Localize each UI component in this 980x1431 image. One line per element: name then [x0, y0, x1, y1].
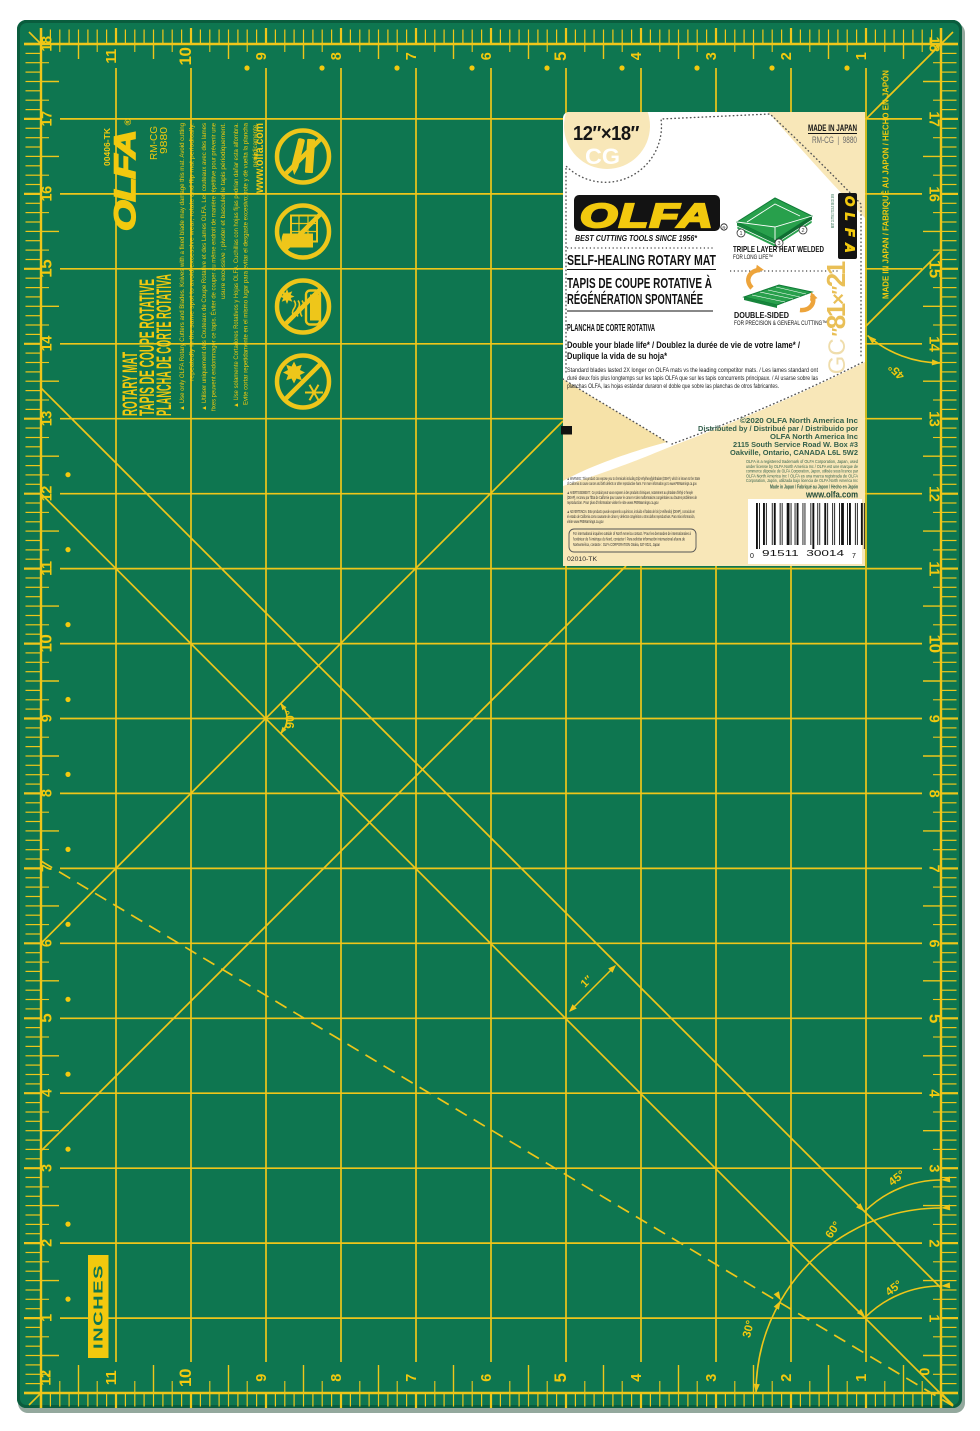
- svg-text:91511 30014: 91511 30014: [762, 549, 845, 558]
- svg-text:©2020 OLFA North America Inc: ©2020 OLFA North America Inc: [740, 417, 858, 425]
- svg-text:7: 7: [926, 865, 942, 873]
- svg-text:Duplique la vida de su hoja*: Duplique la vida de su hoja*: [567, 351, 667, 361]
- svg-text:F: F: [843, 228, 858, 237]
- svg-text:12: 12: [39, 1370, 55, 1386]
- svg-text:2: 2: [926, 1239, 942, 1247]
- svg-text:02010-TK: 02010-TK: [567, 556, 598, 563]
- svg-text:11: 11: [40, 561, 56, 576]
- svg-text:visite www.P65Warnings.ca.gov.: visite www.P65Warnings.ca.gov.: [567, 519, 604, 524]
- svg-text:4: 4: [629, 1374, 645, 1382]
- svg-text:duré deux fois plus longtemps: duré deux fois plus longtemps sur les ta…: [567, 375, 818, 382]
- svg-text:18: 18: [40, 36, 56, 52]
- svg-text:of California to cause cancer: of California to cause cancer and birth …: [567, 481, 697, 486]
- svg-text:10: 10: [176, 48, 195, 66]
- svg-text:9: 9: [254, 1374, 270, 1382]
- svg-text:6: 6: [479, 1374, 495, 1382]
- svg-text:8: 8: [329, 52, 345, 60]
- svg-text:MADE IN JAPAN: MADE IN JAPAN: [808, 123, 857, 134]
- svg-text:18: 18: [926, 36, 942, 52]
- svg-text:16: 16: [926, 186, 942, 202]
- svg-text:11: 11: [104, 49, 120, 64]
- svg-text:SELF-HEALING ROTARY MAT: SELF-HEALING ROTARY MAT: [567, 252, 716, 269]
- svg-text:3: 3: [704, 52, 720, 60]
- svg-text:10: 10: [926, 635, 945, 653]
- svg-text:″: ″: [829, 327, 849, 336]
- svg-text:7: 7: [404, 52, 420, 60]
- svg-text:▲ Utiliser uniquement des Cout: ▲ Utiliser uniquement des Couteaux de Co…: [201, 123, 208, 411]
- svg-text:TRIPLE LAYER HEAT WELDED: TRIPLE LAYER HEAT WELDED: [733, 244, 824, 254]
- svg-text:A: A: [843, 242, 858, 252]
- svg-text:l'extérieur de l'Amérique du N: l'extérieur de l'Amérique du Nord, conta…: [573, 537, 685, 542]
- svg-text:1: 1: [40, 1314, 56, 1322]
- svg-text:OLFA: OLFA: [580, 197, 714, 234]
- svg-text:2: 2: [779, 1374, 795, 1382]
- svg-text:Evite cortar repetidamente en: Evite cortar repetidamente en el mismo l…: [242, 123, 249, 405]
- svg-text:13: 13: [926, 411, 942, 427]
- svg-text:CG: CG: [585, 144, 620, 169]
- svg-text:OLFA North America Inc: OLFA North America Inc: [770, 434, 858, 441]
- svg-text:PLANCHA DE CORTE ROTATIVA: PLANCHA DE CORTE ROTATIVA: [567, 322, 655, 334]
- svg-text:10: 10: [176, 1369, 195, 1387]
- svg-text:▲ Use solamente Cortadores Rot: ▲ Use solamente Cortadores Rotativos y H…: [233, 123, 240, 408]
- svg-text:1: 1: [926, 1314, 942, 1322]
- svg-text:5: 5: [551, 1373, 570, 1382]
- svg-text:13: 13: [40, 411, 56, 427]
- svg-text:fixes peuvent endommager ce ta: fixes peuvent endommager ce tapis. Évite…: [208, 123, 217, 411]
- svg-text:8: 8: [329, 1374, 345, 1382]
- svg-text:MADE IN JAPAN / FABRIQUÉ AU JA: MADE IN JAPAN / FABRIQUÉ AU JAPON / HECH…: [880, 70, 891, 299]
- svg-text:11: 11: [926, 561, 942, 576]
- svg-text:Oakville, Ontario, CANADA L6L: Oakville, Ontario, CANADA L6L 5W2: [730, 450, 858, 457]
- svg-text:Standard blades lasted 2X long: Standard blades lasted 2X longer on OLFA…: [567, 367, 818, 374]
- svg-text:12″×18″: 12″×18″: [573, 123, 640, 145]
- svg-text:6: 6: [926, 940, 942, 948]
- svg-text:3: 3: [926, 1164, 942, 1172]
- svg-text:FOR PRECISION & GENERAL CUTTIN: FOR PRECISION & GENERAL CUTTING™: [734, 320, 827, 327]
- svg-text:2: 2: [40, 1239, 56, 1247]
- svg-text:RM-CG | 9880: RM-CG | 9880: [812, 135, 857, 145]
- svg-text:9880: 9880: [159, 126, 170, 154]
- svg-text:BEST CUTTING TOOLS SINCE 1956*: BEST CUTTING TOOLS SINCE 1956*: [575, 234, 698, 243]
- svg-text:8: 8: [40, 789, 56, 797]
- svg-text:2115 South Service Road W. Box: 2115 South Service Road W. Box #3: [733, 442, 858, 449]
- svg-text:TAPIS DE COUPE ROTATIVE À: TAPIS DE COUPE ROTATIVE À: [567, 275, 712, 292]
- svg-text:planchas OLFA, las hojas están: planchas OLFA, las hojas estándar duraro…: [567, 383, 779, 390]
- svg-text:8: 8: [821, 315, 851, 329]
- svg-text:L: L: [843, 213, 858, 221]
- svg-text:16: 16: [40, 186, 56, 202]
- svg-text:0: 0: [750, 553, 754, 560]
- svg-text:11: 11: [104, 1370, 120, 1385]
- svg-text:2: 2: [801, 228, 804, 234]
- svg-text:G: G: [824, 356, 851, 375]
- svg-text:Norteamérica, contacte : OLFA: Norteamérica, contacte : OLFA CORPORATIO…: [573, 542, 660, 547]
- svg-text:7: 7: [852, 553, 856, 560]
- svg-text:usure excessive ; pivoter et b: usure excessive ; pivoter et basculer le…: [220, 123, 227, 299]
- svg-text:repeatedly in the same spot to: repeatedly in the same spot to avoid exc…: [188, 123, 195, 381]
- svg-text:2: 2: [821, 273, 851, 287]
- svg-text:17: 17: [926, 111, 942, 127]
- svg-text:OLFA: OLFA: [109, 131, 142, 231]
- svg-text:9: 9: [40, 714, 56, 722]
- svg-text:7: 7: [404, 1374, 420, 1382]
- svg-text:1: 1: [739, 231, 742, 237]
- svg-text:FOR LONG LIFE™: FOR LONG LIFE™: [733, 254, 773, 261]
- svg-text:O: O: [843, 196, 858, 206]
- svg-text:10: 10: [37, 635, 56, 653]
- svg-text:9: 9: [926, 715, 942, 723]
- svg-text:3: 3: [704, 1374, 720, 1382]
- svg-text:17: 17: [40, 111, 56, 127]
- svg-text:RÉGÉNÉRATION SPONTANÉE: RÉGÉNÉRATION SPONTANÉE: [567, 291, 703, 308]
- svg-text:DOUBLE-SIDED: DOUBLE-SIDED: [734, 310, 789, 320]
- svg-text:2: 2: [779, 52, 795, 60]
- svg-text:Corporation, Japón, utilizada: Corporation, Japón, utilizada bajo licen…: [746, 478, 859, 483]
- svg-text:6: 6: [479, 52, 495, 60]
- svg-text:9: 9: [254, 52, 270, 60]
- svg-text:14: 14: [926, 336, 942, 352]
- svg-text:reproduction. Pour plus d'info: reproduction. Pour plus d'information vi…: [567, 500, 659, 505]
- svg-text:5: 5: [551, 52, 570, 61]
- svg-text:INCHES: INCHES: [91, 1264, 106, 1349]
- svg-text:4: 4: [926, 1089, 942, 1097]
- svg-text:12: 12: [926, 486, 942, 502]
- svg-text:15: 15: [37, 260, 56, 278]
- svg-text:▲ Use only OLFA Rotary Cutters: ▲ Use only OLFA Rotary Cutters and Blade…: [179, 123, 186, 411]
- svg-text:1: 1: [854, 52, 870, 60]
- svg-text:Double your blade life* / Doub: Double your blade life* / Doublez la dur…: [567, 340, 800, 350]
- svg-text:4: 4: [40, 1089, 56, 1097]
- svg-text:5: 5: [37, 1014, 56, 1023]
- svg-text:Distributed by / Distribué par: Distributed by / Distribué par / Distrib…: [698, 426, 858, 433]
- svg-text:″: ″: [829, 285, 849, 294]
- svg-text:www.olfa.com: www.olfa.com: [254, 123, 266, 194]
- svg-text:90°: 90°: [283, 710, 297, 728]
- svg-text:PLANCHA DE CORTE ROTATIVA: PLANCHA DE CORTE ROTATIVA: [153, 274, 176, 416]
- svg-text:1: 1: [854, 1374, 870, 1382]
- svg-text:®: ®: [123, 118, 133, 125]
- svg-text:For international inquiries ou: For international inquiries outside of N…: [573, 531, 691, 536]
- svg-text:5: 5: [926, 1014, 945, 1023]
- svg-text:4: 4: [629, 52, 645, 60]
- svg-text:00406-TK: 00406-TK: [102, 127, 112, 166]
- svg-text:8: 8: [926, 790, 942, 798]
- svg-text:BEST CUTTING TOOLS SINCE 1956: BEST CUTTING TOOLS SINCE 1956: [830, 194, 835, 228]
- svg-text:14: 14: [40, 336, 56, 352]
- svg-text:C: C: [824, 338, 851, 355]
- svg-text:www.olfa.com: www.olfa.com: [805, 490, 858, 500]
- svg-text:3: 3: [40, 1164, 56, 1172]
